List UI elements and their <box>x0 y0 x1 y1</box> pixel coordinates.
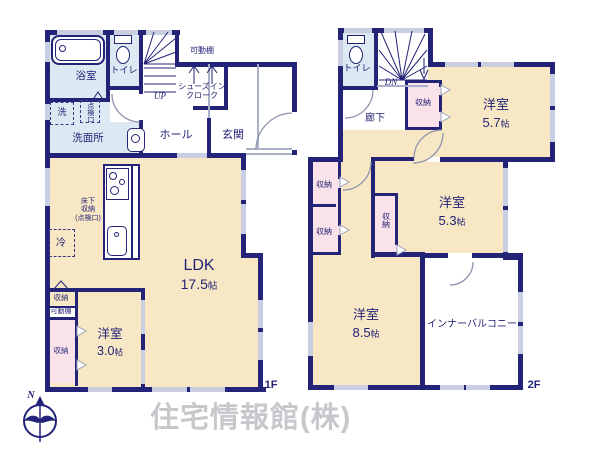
label-bedroom57-size: 5.7帖 <box>483 116 510 131</box>
kitchen-faucet <box>114 232 119 237</box>
bedroom53-size-unit: 帖 <box>457 217 466 227</box>
ldk-size-value: 17.5 <box>181 276 208 292</box>
kitchen-divider <box>131 166 133 258</box>
bedroom30-size-unit: 帖 <box>114 347 123 357</box>
label-stairs-up: UP <box>154 91 166 101</box>
compass-north-label: N <box>27 390 34 401</box>
floor-plan: 浴室 トイレ 洗 点検口 洗面所 ホール 玄関 シューズイン クローク 可動棚 … <box>0 0 600 450</box>
washbasin-bowl <box>131 134 140 143</box>
floor-label-2f: 2F <box>528 379 541 391</box>
bedroom53-size-value: 5.3 <box>439 213 457 228</box>
label-closet-2f-b: 収納 <box>381 212 390 228</box>
label-ldk: LDK <box>183 257 214 275</box>
toilet-bowl-2f <box>349 46 363 64</box>
burner-2 <box>119 179 125 185</box>
staircase-2f <box>379 31 428 80</box>
bathtub-drain <box>59 45 66 52</box>
label-closet-2f-c: 収納 <box>316 181 332 190</box>
label-stairs-dn: DN <box>385 77 398 87</box>
floor-storage-line3: (点検口) <box>75 215 101 223</box>
staircase-1f <box>144 32 176 92</box>
label-bath: 浴室 <box>76 71 97 83</box>
label-washer: 洗 <box>57 107 66 117</box>
bedroom57-size-unit: 帖 <box>501 119 510 129</box>
label-closet-1f-bottom: 収納 <box>54 347 69 355</box>
label-bedroom53: 洋室 <box>439 196 465 211</box>
label-balcony: インナーバルコニー <box>427 319 517 330</box>
label-closet-2f-d: 収納 <box>316 228 332 237</box>
bedroom85-size-unit: 帖 <box>371 329 380 339</box>
toilet-vestibule <box>110 88 139 122</box>
label-toilet-1f: トイレ <box>110 65 137 75</box>
toilet-tank-1f <box>114 35 132 44</box>
label-washroom: 洗面所 <box>72 133 104 145</box>
floor-label-1f: 1F <box>265 379 278 391</box>
burner-3 <box>110 186 119 195</box>
toilet-bowl-1f <box>116 46 130 64</box>
compass-arrow <box>35 396 45 406</box>
toilet-tank-2f <box>347 35 365 44</box>
label-movable-shelf-2: 可動棚 <box>51 308 72 316</box>
compass-bird <box>24 416 56 423</box>
label-hatch: 点検口 <box>86 102 94 123</box>
label-shoes-closet: シューズイン クローク <box>178 83 226 101</box>
label-bedroom85-size: 8.5帖 <box>353 326 380 341</box>
label-bedroom85: 洋室 <box>353 308 379 323</box>
bedroom85-size-value: 8.5 <box>353 325 371 340</box>
room-ldk-lower <box>49 255 258 388</box>
entrance-door-arc <box>256 113 292 150</box>
label-hall: ホール <box>160 129 193 141</box>
ldk-size-unit: 帖 <box>208 281 218 292</box>
shoes-closet-line2: クローク <box>178 92 226 101</box>
bedroom30-size-value: 3.0 <box>97 344 114 358</box>
bedroom57-size-value: 5.7 <box>483 115 501 130</box>
label-closet-1f-top: 収納 <box>54 294 69 302</box>
label-floor-storage: 床下 収納 (点検口) <box>75 198 101 223</box>
label-closet-2f-a: 収納 <box>415 99 431 108</box>
label-movable-shelf-sic: 可動棚 <box>190 47 214 56</box>
label-toilet-2f: トイレ <box>343 63 370 73</box>
balcony-door-arc <box>450 262 473 285</box>
compass <box>24 396 56 442</box>
company-watermark: 住宅情報館(株) <box>150 404 351 433</box>
burner-1 <box>109 172 117 180</box>
sic-shelf-marks <box>189 66 217 73</box>
label-bedroom57: 洋室 <box>483 98 509 113</box>
label-fridge: 冷 <box>56 238 66 249</box>
label-bedroom30: 洋室 <box>97 327 122 341</box>
kitchen-sink-icon <box>107 226 127 256</box>
label-ldk-size: 17.5帖 <box>181 277 218 293</box>
label-corridor: 廊下 <box>365 113 385 124</box>
floor-storage-line2: 収納 <box>75 206 101 214</box>
label-entrance: 玄関 <box>222 129 244 141</box>
label-bedroom30-size: 3.0帖 <box>97 344 123 358</box>
label-bedroom53-size: 5.3帖 <box>439 214 466 229</box>
